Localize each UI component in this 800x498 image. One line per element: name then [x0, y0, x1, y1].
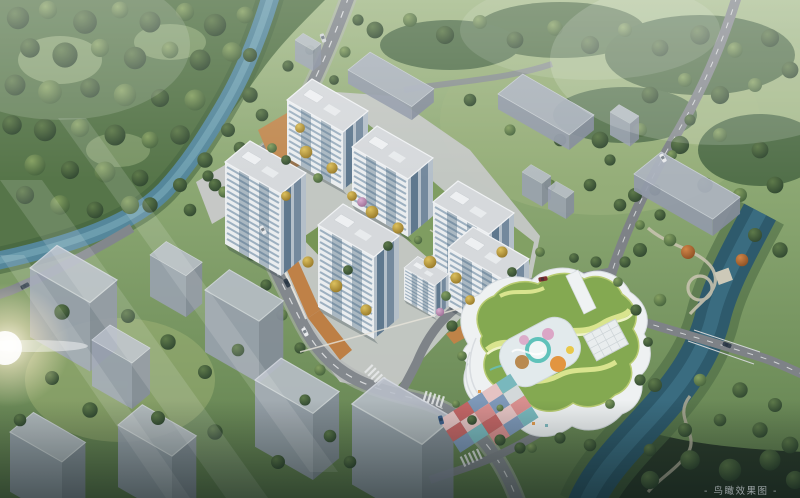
play-mound	[515, 355, 529, 369]
play-dot	[566, 346, 574, 354]
aerial-rendering: - 鸟瞰效果图 -	[0, 0, 800, 498]
blossom-tree	[519, 335, 529, 345]
play-dome	[550, 356, 566, 372]
play-ring	[527, 339, 549, 361]
viewpoint-caption: - 鸟瞰效果图 -	[704, 485, 778, 497]
vignette	[0, 400, 800, 498]
blossom-tree	[542, 328, 554, 340]
